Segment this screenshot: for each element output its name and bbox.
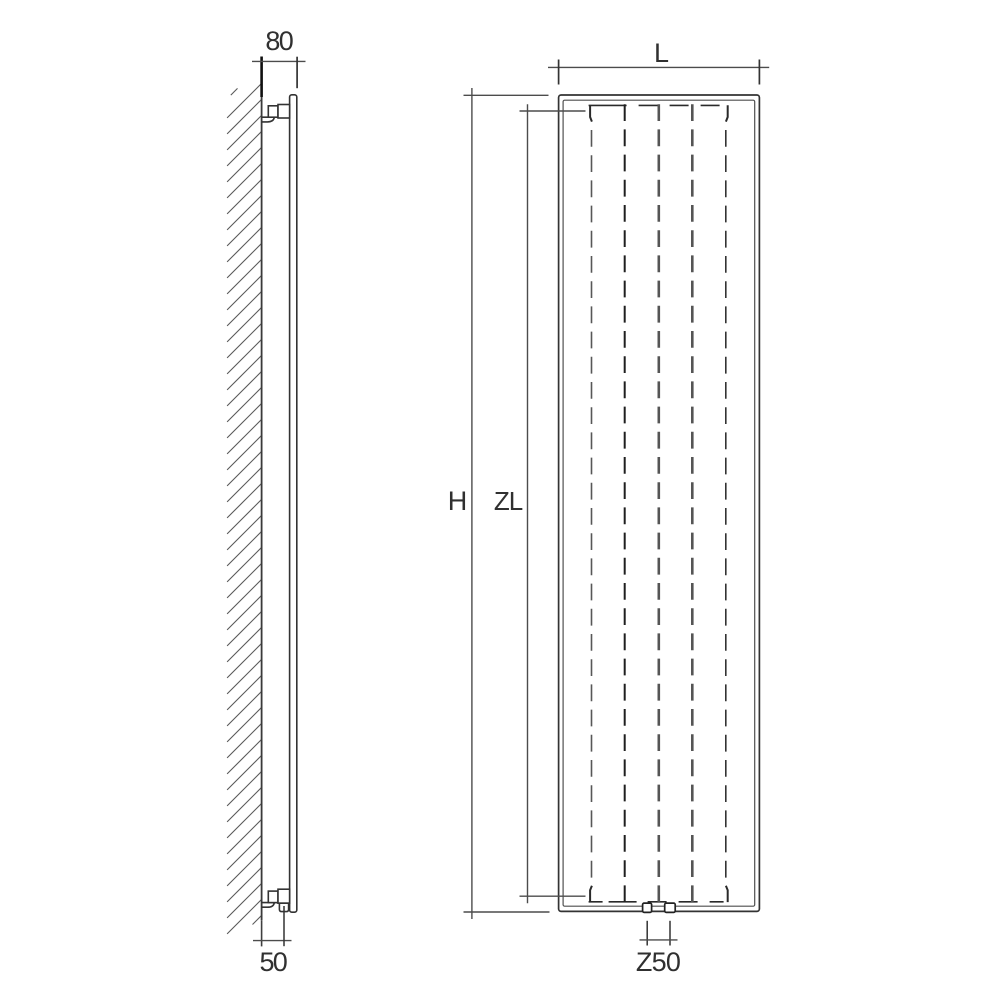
svg-text:50: 50: [260, 947, 287, 977]
svg-text:H: H: [448, 486, 468, 516]
svg-text:Z50: Z50: [636, 947, 680, 977]
svg-text:80: 80: [265, 26, 292, 56]
svg-text:ZL: ZL: [494, 486, 523, 516]
svg-text:L: L: [654, 38, 669, 68]
